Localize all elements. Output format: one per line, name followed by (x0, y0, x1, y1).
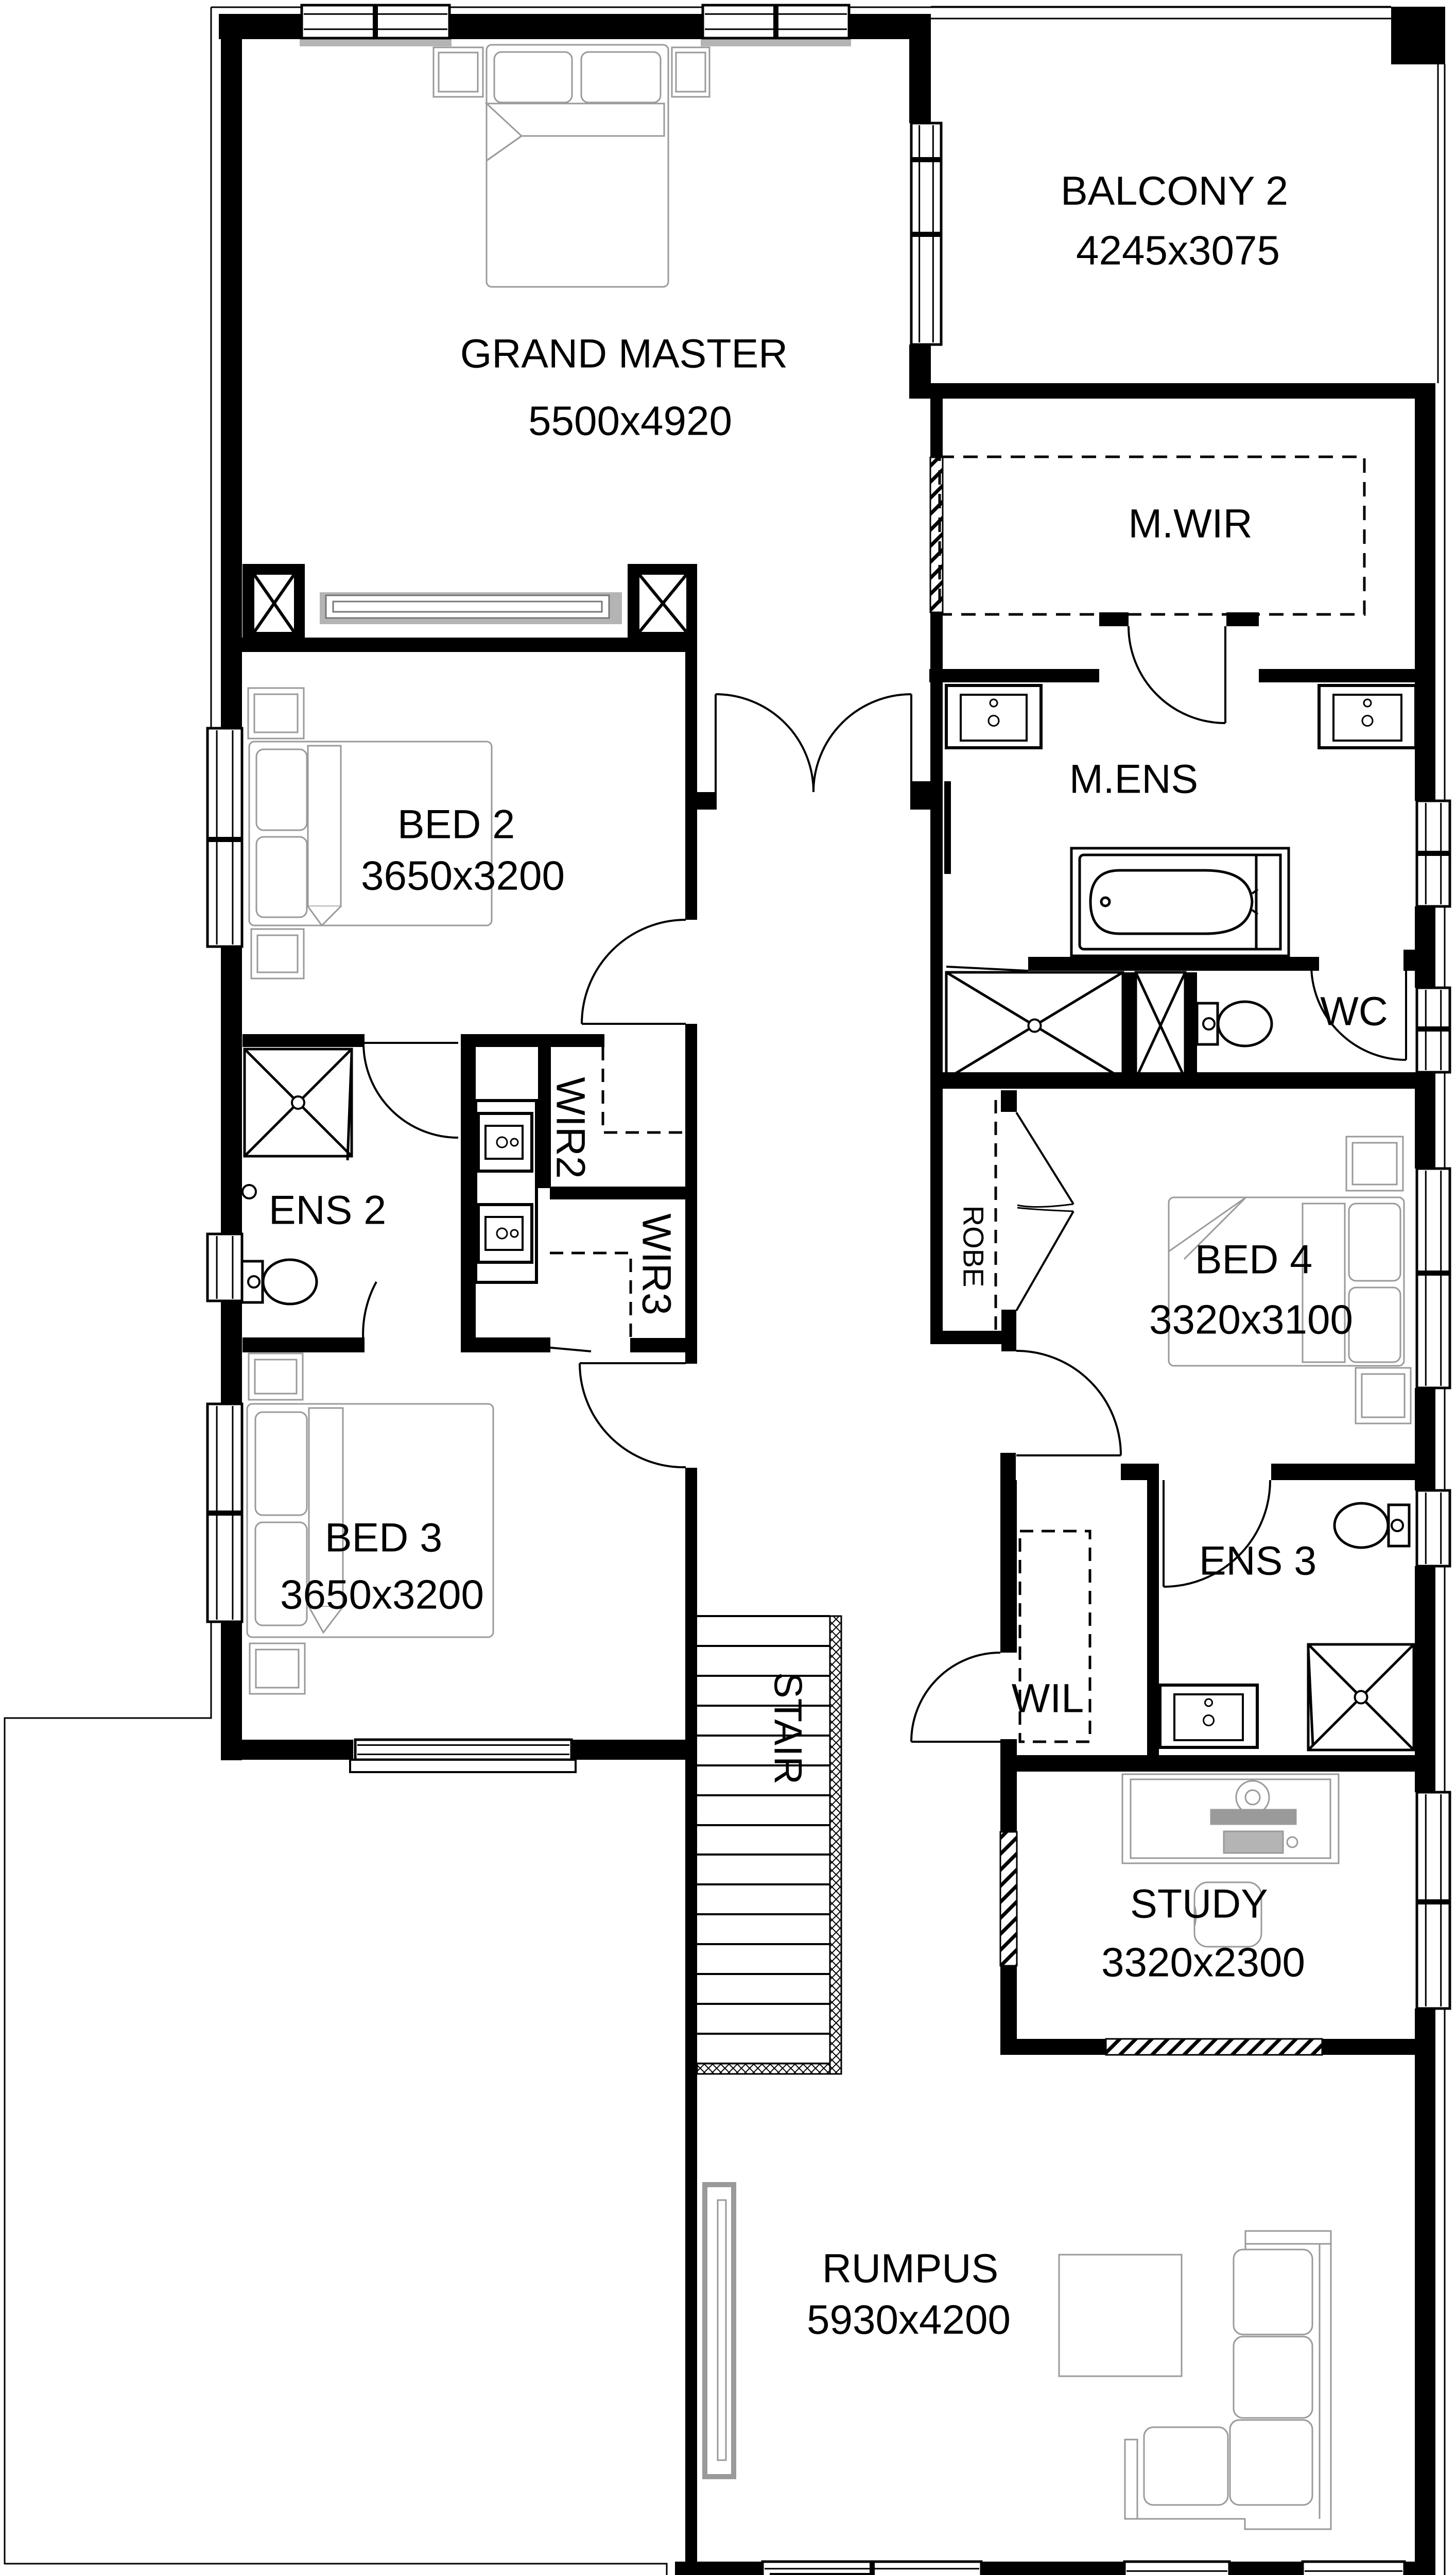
svg-text:M.WIR: M.WIR (1128, 501, 1252, 546)
svg-text:3320x2300: 3320x2300 (1101, 1939, 1305, 1985)
svg-text:3650x3200: 3650x3200 (361, 853, 565, 899)
svg-text:BED 3: BED 3 (325, 1515, 442, 1560)
svg-text:ENS 3: ENS 3 (1199, 1538, 1316, 1584)
svg-text:3650x3200: 3650x3200 (280, 1572, 484, 1618)
svg-text:M.ENS: M.ENS (1069, 756, 1198, 802)
svg-text:BED 2: BED 2 (397, 801, 515, 847)
svg-text:GRAND MASTER: GRAND MASTER (460, 331, 788, 376)
svg-text:5500x4920: 5500x4920 (528, 398, 732, 444)
svg-text:ENS 2: ENS 2 (269, 1187, 386, 1233)
svg-text:STAIR: STAIR (766, 1672, 810, 1784)
svg-text:ROBE: ROBE (958, 1206, 990, 1287)
svg-text:3320x3100: 3320x3100 (1149, 1297, 1353, 1343)
svg-text:BED 4: BED 4 (1195, 1237, 1312, 1282)
svg-text:5930x4200: 5930x4200 (807, 2297, 1011, 2343)
svg-text:WIL: WIL (1012, 1675, 1084, 1721)
svg-text:WIR2: WIR2 (548, 1077, 594, 1179)
svg-text:WIR3: WIR3 (634, 1213, 680, 1315)
svg-text:RUMPUS: RUMPUS (822, 2245, 998, 2291)
svg-text:BALCONY 2: BALCONY 2 (1061, 168, 1288, 214)
svg-text:WC: WC (1320, 988, 1388, 1034)
svg-text:STUDY: STUDY (1130, 1881, 1268, 1927)
svg-text:4245x3075: 4245x3075 (1076, 228, 1280, 273)
